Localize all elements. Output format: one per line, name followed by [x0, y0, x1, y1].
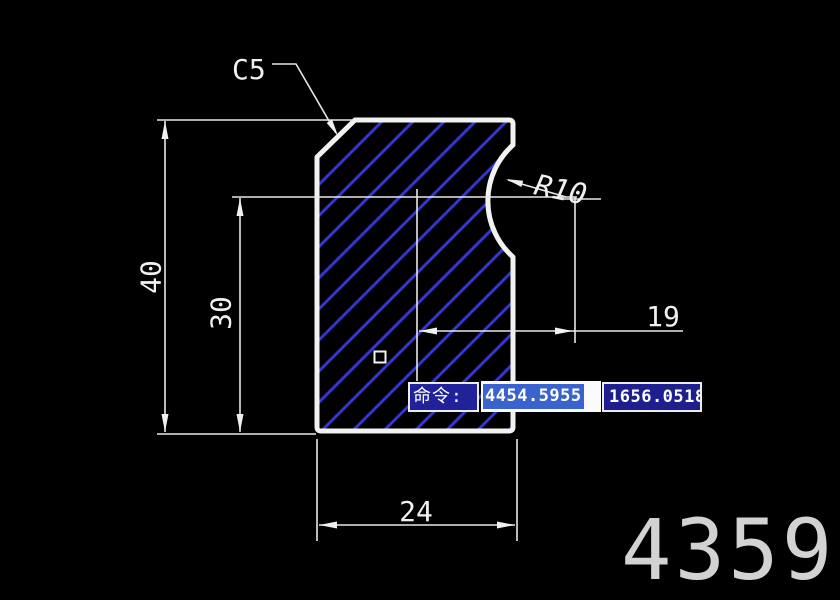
coordinate-y-value: 1656.0518 [609, 389, 702, 406]
c5-text[interactable]: C5 [232, 53, 266, 86]
coordinate-x-value[interactable]: 4454.5955 [483, 384, 584, 409]
dim-30-arrow-up [237, 198, 244, 216]
dimension-40[interactable]: 40 [135, 121, 169, 432]
grip-handle[interactable] [375, 352, 386, 363]
radius-label-r10[interactable]: R10 [506, 168, 601, 212]
dim-24-arrow-left [319, 522, 337, 529]
sheet-number-watermark: 4359 [621, 501, 835, 599]
r10-text[interactable]: R10 [532, 168, 590, 212]
c5-leader-arrow [327, 120, 338, 136]
dim-40-arrow-down [162, 414, 169, 432]
command-prompt-label: 命令: [413, 388, 463, 406]
dim-24-arrow-right [497, 522, 515, 529]
dim-40-arrow-up [162, 121, 169, 139]
c5-leader-line[interactable] [272, 64, 336, 133]
dim-40-text[interactable]: 40 [135, 260, 168, 294]
chamfer-label-c5[interactable]: C5 [232, 53, 338, 136]
dim-30-arrow-down [237, 414, 244, 432]
dim-19-text[interactable]: 19 [646, 300, 680, 333]
dimension-30[interactable]: 30 [205, 198, 244, 432]
cad-application-window: 40 30 19 24 C5 [0, 0, 840, 600]
r10-leader-arrow [506, 179, 523, 187]
dim-24-text[interactable]: 24 [399, 495, 433, 528]
coordinate-y-box[interactable]: 1656.0518 [602, 382, 702, 412]
dim-30-text[interactable]: 30 [205, 296, 238, 330]
dimension-24[interactable]: 24 [319, 495, 515, 529]
coordinate-x-input[interactable]: 4454.5955 [481, 381, 601, 412]
command-prompt-box: 命令: [408, 382, 479, 412]
dim-19-arrow-right [555, 328, 573, 335]
